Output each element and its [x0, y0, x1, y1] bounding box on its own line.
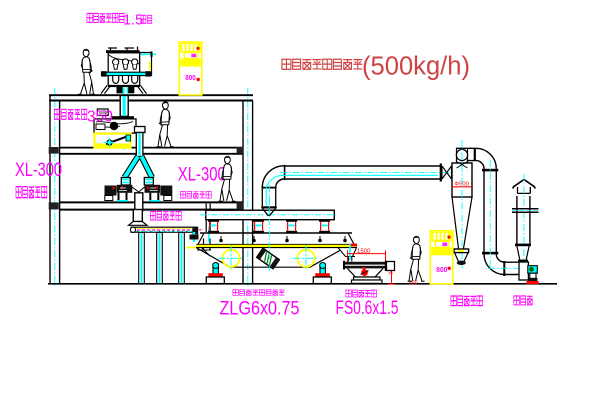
svg-text:XL-300: XL-300: [178, 165, 226, 186]
svg-text:350: 350: [87, 109, 113, 126]
svg-text:XL-300: XL-300: [15, 160, 62, 181]
svg-text:1.5: 1.5: [123, 13, 143, 29]
svg-text:800: 800: [436, 265, 447, 274]
svg-text:FS0.6x1.5: FS0.6x1.5: [336, 298, 399, 319]
svg-text:(500kg/h): (500kg/h): [362, 53, 470, 81]
svg-text:ZLG6x0.75: ZLG6x0.75: [220, 298, 300, 319]
svg-text:800: 800: [185, 73, 196, 82]
svg-text:1500: 1500: [357, 249, 371, 255]
